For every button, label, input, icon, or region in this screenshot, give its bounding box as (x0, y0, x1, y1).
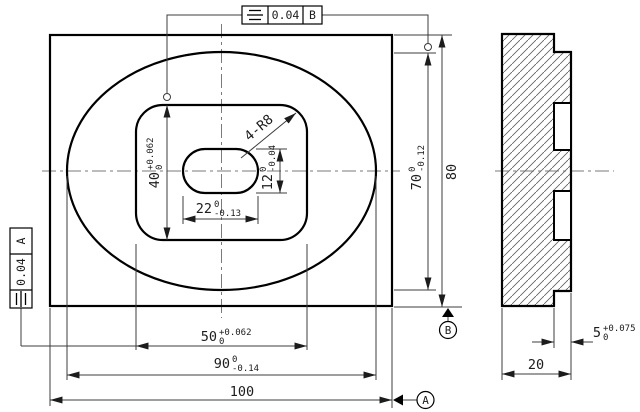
dim-20: 20 (528, 357, 544, 373)
svg-text:0: 0 (155, 165, 165, 170)
datum-b-label: B (445, 324, 452, 337)
datum-b-triangle (442, 308, 454, 317)
svg-text:20: 20 (528, 357, 544, 373)
svg-text:5: 5 (593, 325, 601, 341)
leader-dot (164, 94, 171, 101)
dim-5: 5 +0.075 0 (593, 324, 636, 343)
dim-12: 12 0 -0.04 (259, 145, 278, 190)
fcf-top-datum: B (309, 8, 316, 22)
fcf-top-tolerance: 0.04 (272, 8, 300, 22)
dim-22: 22 0 -0.13 (196, 200, 241, 219)
svg-text:40: 40 (147, 172, 163, 188)
svg-text:0: 0 (603, 333, 608, 343)
dim-70: 70 0 -0.12 (408, 145, 427, 190)
svg-text:-0.14: -0.14 (232, 364, 259, 374)
leader-dot (425, 44, 432, 51)
datum-a-triangle (393, 395, 403, 406)
svg-text:70: 70 (409, 174, 425, 190)
svg-text:50: 50 (201, 329, 217, 345)
datum-b: B (440, 308, 457, 339)
datum-a: A (393, 392, 434, 409)
fcf-left: A 0.04 (10, 228, 32, 346)
svg-text:90: 90 (214, 356, 230, 372)
extension-lines (50, 35, 571, 408)
svg-text:4-R8: 4-R8 (241, 111, 276, 144)
section-profile (502, 34, 571, 306)
svg-text:100: 100 (230, 384, 254, 400)
datum-a-label: A (422, 394, 429, 407)
drawing-canvas: 0.04 B A 0.04 A B 50 +0.062 0 (0, 0, 640, 412)
svg-text:-0.12: -0.12 (417, 145, 427, 172)
svg-text:0: 0 (219, 337, 224, 347)
dim-50: 50 +0.062 0 (201, 328, 252, 347)
section-void-upper (554, 103, 571, 150)
dim-40: 40 +0.062 0 (146, 137, 165, 188)
svg-text:80: 80 (444, 164, 460, 180)
fcf-left-datum: A (14, 237, 28, 244)
section-void-lower (554, 191, 571, 240)
svg-text:-0.04: -0.04 (268, 145, 278, 172)
svg-text:-0.13: -0.13 (214, 209, 241, 219)
dim-r8: 4-R8 (241, 111, 276, 144)
engineering-drawing: 0.04 B A 0.04 A B 50 +0.062 0 (0, 0, 640, 412)
side-section-view (502, 34, 571, 306)
fcf-left-tolerance: 0.04 (14, 258, 28, 286)
dim-100: 100 (230, 384, 254, 400)
dim-80: 80 (444, 164, 460, 180)
dim-90: 90 0 -0.14 (214, 355, 259, 374)
svg-text:12: 12 (260, 174, 276, 190)
svg-text:22: 22 (196, 201, 212, 217)
